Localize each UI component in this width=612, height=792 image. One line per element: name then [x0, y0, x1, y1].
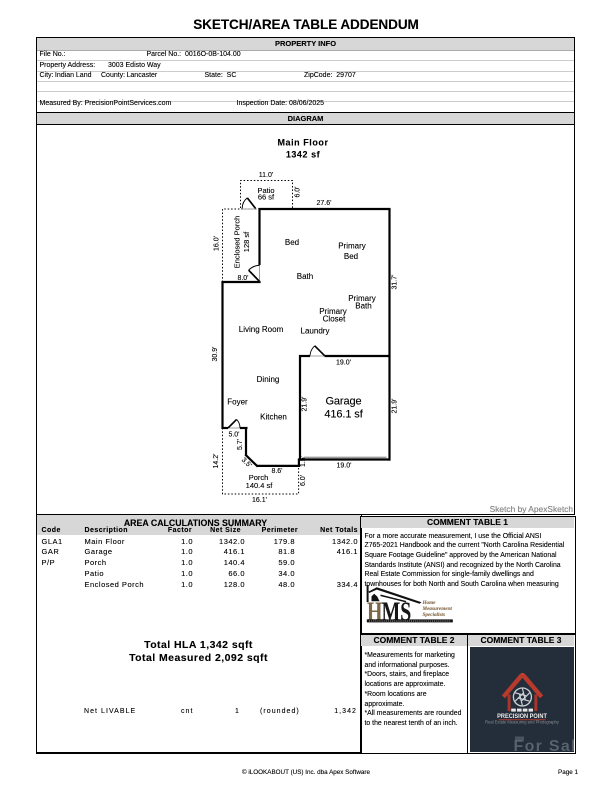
svg-text:Kitchen: Kitchen	[260, 413, 287, 422]
svg-text:5.0': 5.0'	[228, 431, 239, 438]
svg-text:Bed: Bed	[285, 238, 299, 247]
svg-text:27.6': 27.6'	[317, 200, 332, 207]
svg-text:HMS: HMS	[367, 598, 411, 628]
svg-text:21.9': 21.9'	[301, 397, 308, 412]
svg-text:Measurement: Measurement	[422, 606, 453, 612]
svg-text:140.4 sf: 140.4 sf	[246, 481, 274, 490]
svg-text:6.0': 6.0'	[300, 475, 307, 486]
svg-text:1342 sf: 1342 sf	[286, 150, 321, 160]
svg-text:30.9': 30.9'	[212, 347, 219, 362]
svg-text:Living Room: Living Room	[239, 325, 284, 334]
svg-text:Bath: Bath	[355, 302, 371, 311]
svg-text:14.2': 14.2'	[213, 454, 220, 469]
svg-text:11.0': 11.0'	[259, 172, 273, 179]
svg-text:416.1 sf: 416.1 sf	[324, 408, 363, 420]
svg-text:128 sf: 128 sf	[242, 231, 251, 252]
svg-text:6.0': 6.0'	[295, 186, 302, 197]
svg-text:For Sal: For Sal	[513, 737, 574, 752]
svg-text:Bed: Bed	[344, 252, 358, 261]
svg-text:Main Floor: Main Floor	[278, 137, 329, 147]
svg-text:5.7': 5.7'	[237, 439, 244, 450]
svg-text:16.1': 16.1'	[252, 497, 267, 504]
svg-text:Laundry: Laundry	[301, 327, 330, 336]
svg-text:31.7': 31.7'	[392, 275, 399, 290]
svg-text:16.0': 16.0'	[213, 236, 220, 251]
svg-text:Garage: Garage	[325, 396, 361, 408]
svg-text:8.6': 8.6'	[271, 468, 282, 475]
svg-text:Specialists: Specialists	[423, 612, 445, 618]
svg-text:Foyer: Foyer	[227, 398, 248, 407]
svg-text:Dining: Dining	[257, 375, 280, 384]
svg-text:21.9': 21.9'	[392, 399, 399, 414]
svg-text:Primary: Primary	[338, 242, 366, 251]
svg-text:19.0': 19.0'	[337, 463, 352, 470]
svg-text:1.5': 1.5'	[300, 456, 307, 467]
svg-text:Enclosed Porch: Enclosed Porch	[233, 216, 242, 269]
svg-text:66 sf: 66 sf	[258, 192, 275, 201]
svg-text:Bath: Bath	[297, 272, 313, 281]
svg-text:Closet: Closet	[323, 315, 346, 324]
svg-text:8.0': 8.0'	[237, 275, 248, 282]
svg-text:19.0': 19.0'	[336, 359, 351, 366]
svg-text:Real Estate Measuring and Phot: Real Estate Measuring and Photography	[485, 719, 560, 724]
